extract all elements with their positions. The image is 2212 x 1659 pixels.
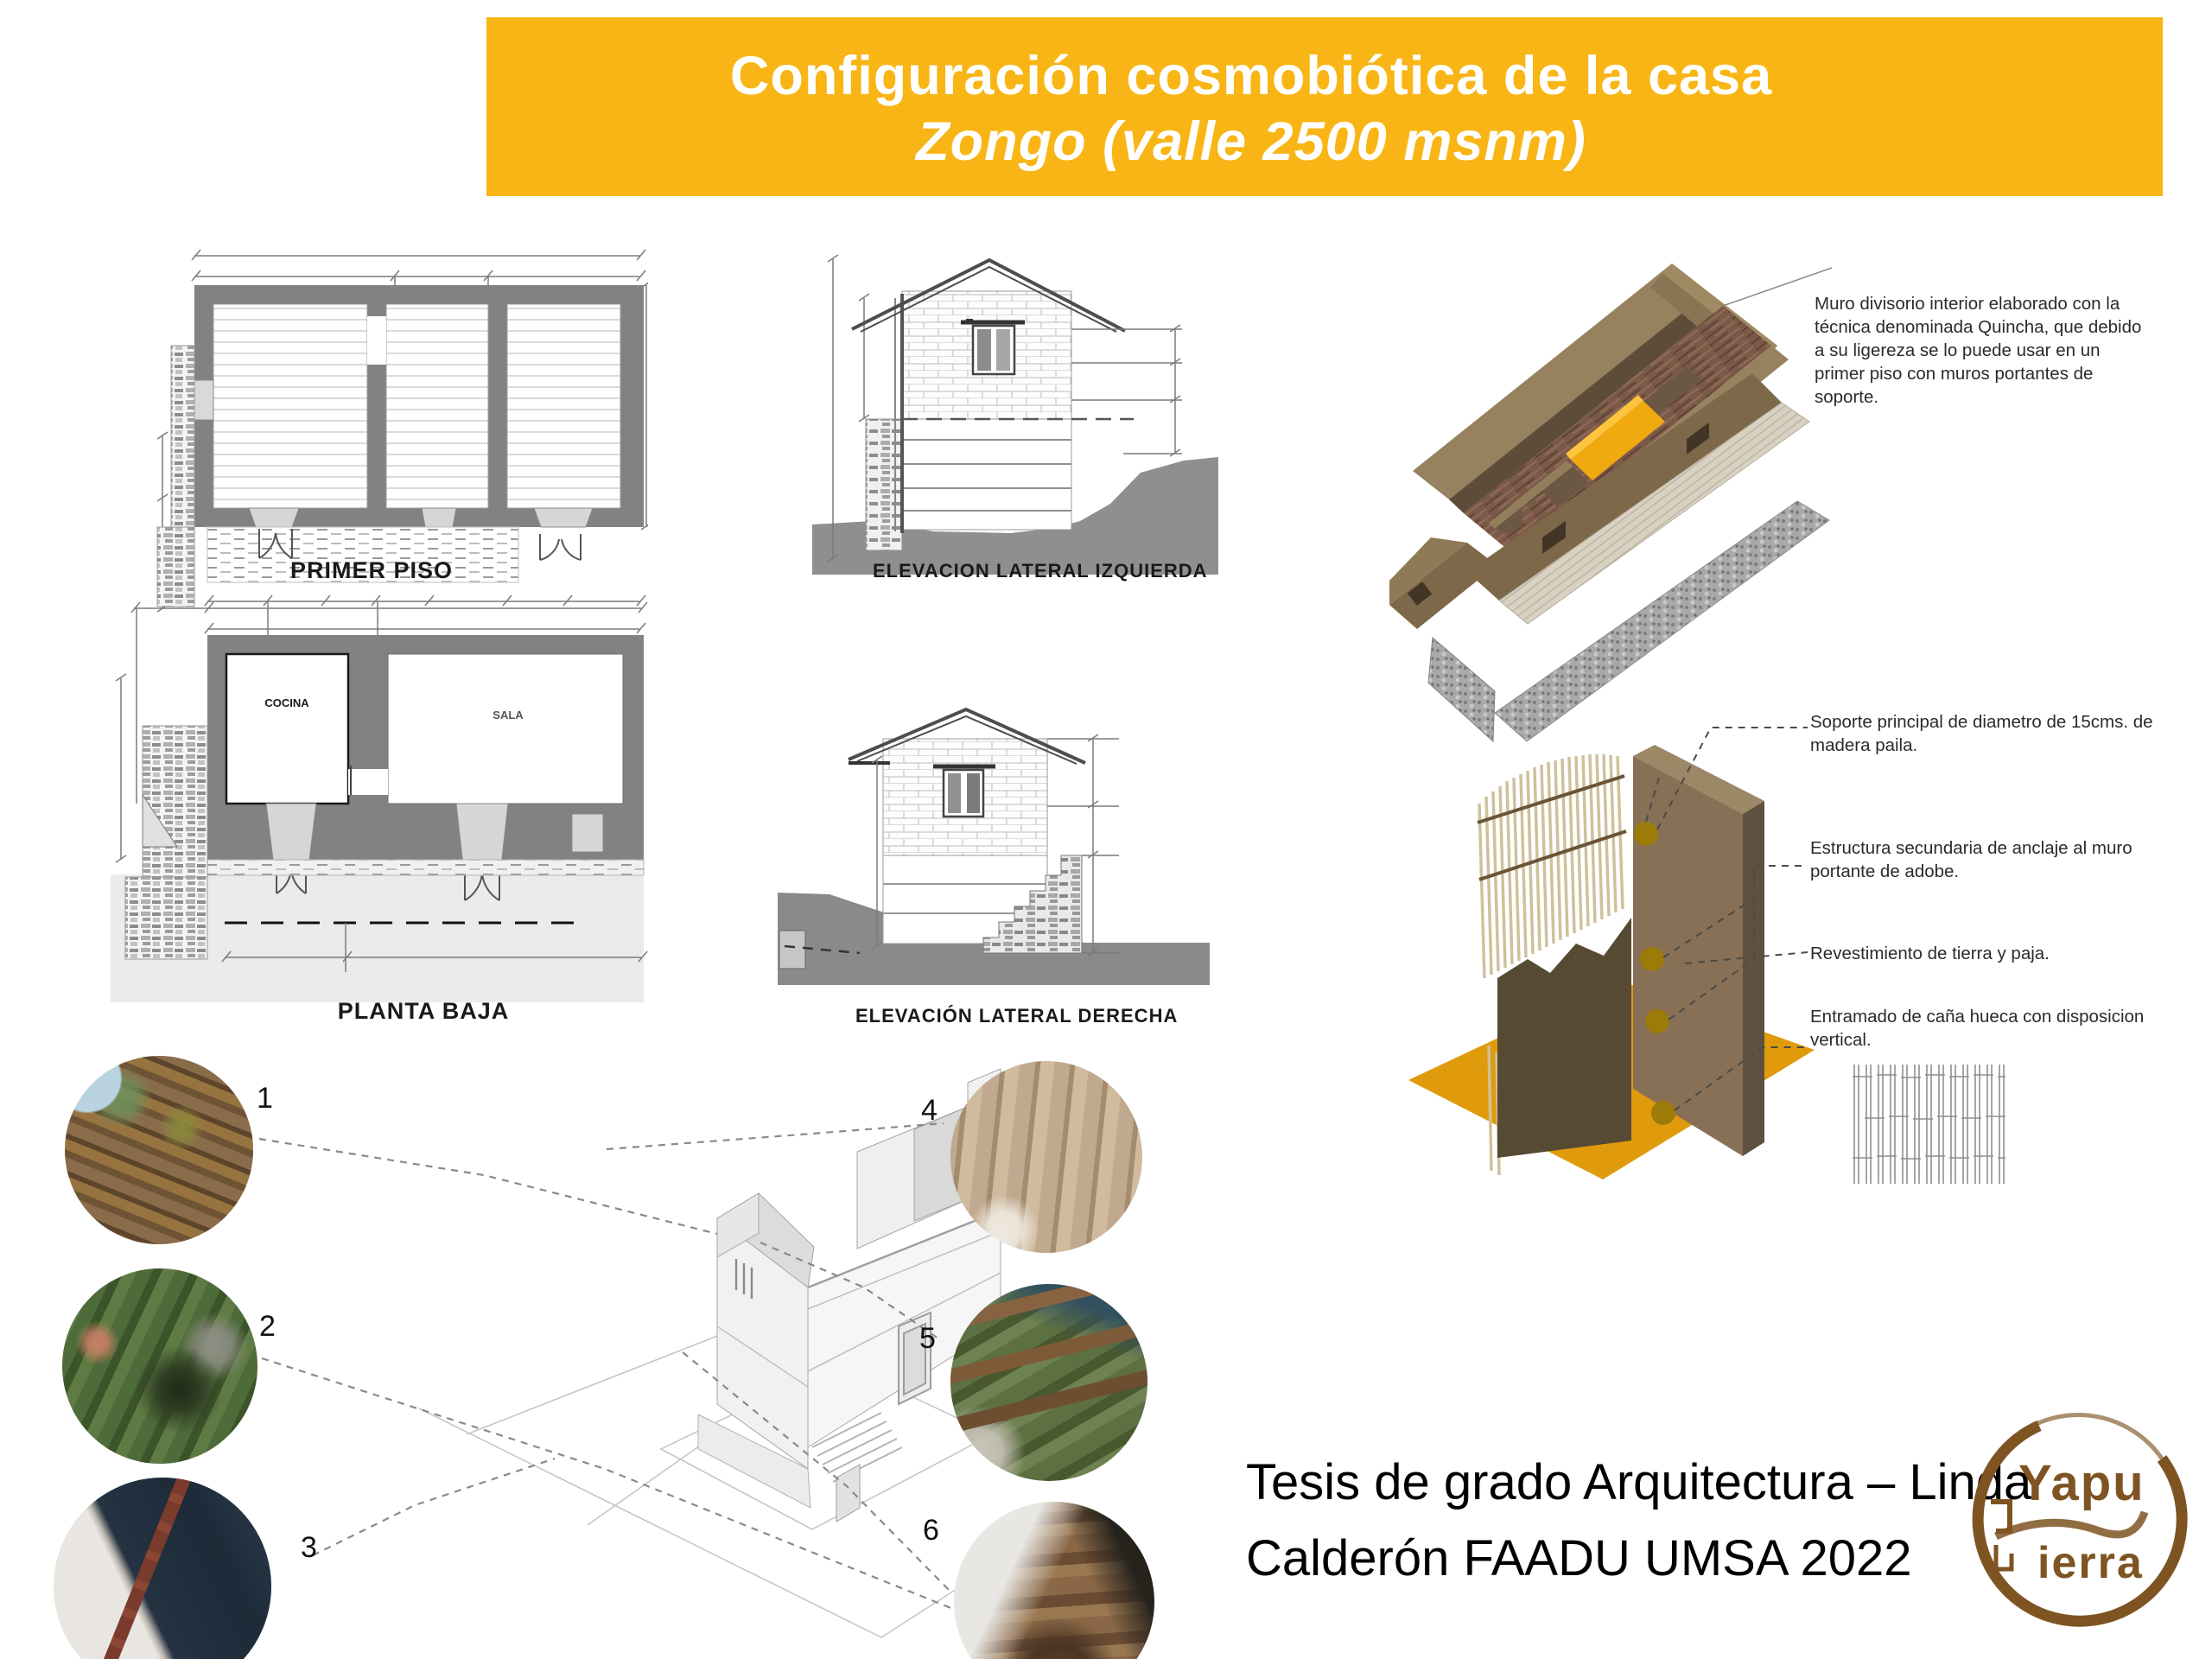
cane-pattern-diagram	[1849, 1065, 2018, 1185]
elevacion-izquierda-label: ELEVACION LATERAL IZQUIERDA	[873, 560, 1184, 582]
annotation-estructura: Estructura secundaria de anclaje al muro…	[1810, 836, 2156, 883]
photo-number-5: 5	[919, 1322, 936, 1356]
elevacion-derecha-label: ELEVACIÓN LATERAL DERECHA	[855, 1005, 1166, 1027]
photo-wood-fence	[950, 1284, 1147, 1481]
photo-number-3: 3	[301, 1531, 317, 1565]
primer-piso-label: PRIMER PISO	[251, 557, 493, 584]
planta-baja-plan-drawing: COCINA SALA	[95, 596, 652, 1002]
sala-room-label: SALA	[493, 709, 524, 721]
photo-overgrown-ruin	[62, 1268, 257, 1464]
primer-piso-plan-drawing	[95, 242, 648, 648]
slide: Configuración cosmobiótica de la casa Zo…	[0, 0, 2212, 1659]
annotation-revestimiento: Revestimiento de tierra y paja.	[1810, 942, 2156, 965]
photo-stone-wall	[65, 1056, 253, 1244]
photo-number-6: 6	[923, 1514, 939, 1548]
title-banner: Configuración cosmobiótica de la casa Zo…	[486, 17, 2163, 196]
slide-title-line2: Zongo (valle 2500 msnm)	[916, 112, 1586, 172]
photo-adobe-surface	[950, 1061, 1142, 1253]
annotation-quincha: Muro divisorio interior elaborado con la…	[1815, 292, 2152, 409]
planta-baja-label: PLANTA BAJA	[285, 998, 562, 1025]
photo-number-4: 4	[921, 1094, 938, 1128]
elevacion-derecha-drawing	[778, 687, 1210, 1033]
cocina-room-label: COCINA	[264, 696, 309, 709]
yapu-tierra-logo: Yapu ierra	[1935, 1389, 2212, 1649]
photo-number-1: 1	[257, 1082, 273, 1116]
slide-title-line1: Configuración cosmobiótica de la casa	[730, 41, 1772, 112]
elevacion-izquierda-drawing	[812, 246, 1218, 575]
logo-word-bottom: ierra	[2037, 1538, 2144, 1588]
photo-number-2: 2	[259, 1310, 276, 1344]
annotation-entramado: Entramado de caña hueca con disposicion …	[1810, 1005, 2156, 1052]
annotation-soporte: Soporte principal de diametro de 15cms. …	[1810, 710, 2156, 757]
logo-word-top: Yapu	[2018, 1455, 2145, 1511]
